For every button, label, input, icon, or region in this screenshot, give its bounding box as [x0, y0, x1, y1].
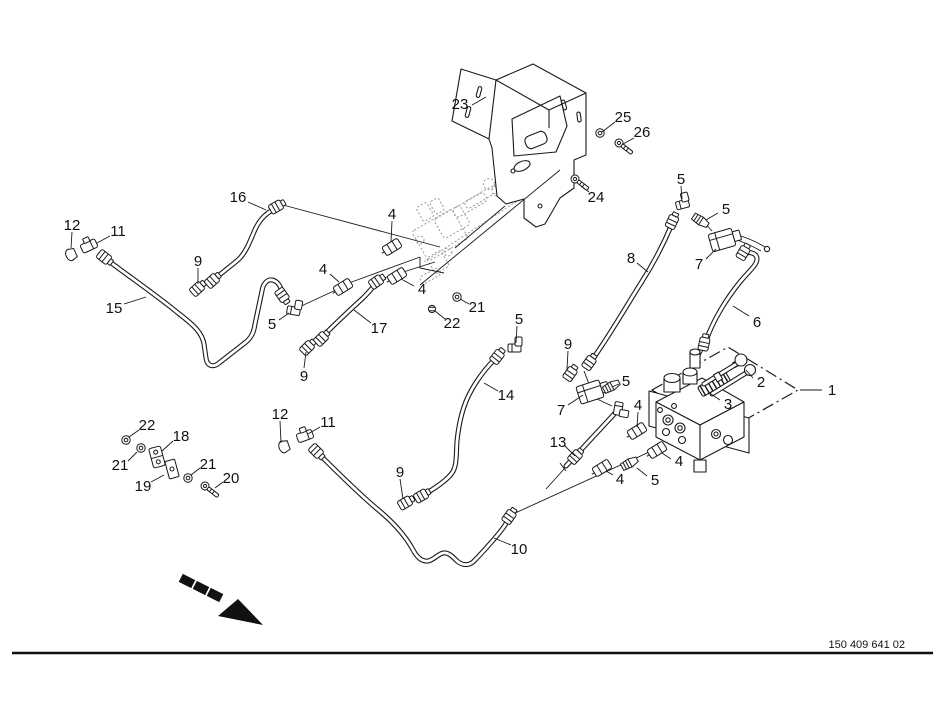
hose-14	[423, 359, 495, 496]
callout-label-17: 17	[371, 320, 388, 337]
union-4-valve-right	[644, 441, 667, 461]
callout-leader-4	[662, 453, 671, 459]
union-4-valve-left	[589, 459, 612, 479]
callout-label-9: 9	[396, 464, 404, 481]
washer-22-bl	[122, 436, 130, 444]
elbow-5-top-right	[673, 192, 690, 210]
callout-leader-7	[706, 249, 716, 259]
hose8-top-nut	[665, 211, 681, 230]
callout-leader-21	[128, 452, 137, 461]
callout-leader-12	[280, 421, 281, 443]
callout-label-7: 7	[557, 402, 565, 419]
callout-label-9: 9	[300, 368, 308, 385]
callout-leader-4	[606, 471, 613, 475]
callout-leader-15	[124, 297, 146, 304]
callout-label-4: 4	[319, 261, 327, 278]
callout-leader-26	[623, 138, 634, 144]
hose-17	[321, 282, 377, 338]
callout-label-21: 21	[469, 299, 486, 316]
callout-label-5: 5	[722, 201, 730, 218]
union-4-a	[330, 278, 353, 298]
clamp-18	[149, 446, 166, 468]
callout-label-5: 5	[515, 311, 523, 328]
union-4-c	[384, 267, 407, 287]
callout-label-4: 4	[418, 281, 426, 298]
fittings	[64, 129, 752, 525]
callout-label-14: 14	[498, 387, 515, 404]
callout-leader-5	[637, 468, 647, 476]
callout-leader-9	[567, 351, 568, 369]
fitting-11-bottom	[294, 425, 314, 443]
callout-leader-18	[162, 441, 173, 451]
callout-label-1: 1	[828, 382, 836, 399]
hose-10	[316, 451, 508, 565]
diagram-svg: 2325262455716121194442122155179865975131…	[0, 0, 950, 725]
callout-label-11: 11	[110, 223, 126, 240]
callout-label-22: 22	[139, 417, 156, 434]
callout-leader-10	[494, 538, 511, 545]
bolt-26	[613, 137, 634, 156]
callout-label-4: 4	[675, 453, 683, 470]
callout-leader-21	[191, 468, 200, 475]
callout-label-15: 15	[106, 300, 123, 317]
callout-label-3: 3	[724, 396, 732, 413]
callout-label-4: 4	[634, 397, 642, 414]
callout-label-5: 5	[622, 373, 630, 390]
callout-label-26: 26	[634, 124, 651, 141]
callout-label-11: 11	[320, 414, 336, 431]
assembly-axis-lines	[283, 170, 712, 514]
plug-5-right	[691, 212, 710, 229]
callout-label-5: 5	[268, 316, 276, 333]
hose-16	[214, 208, 276, 280]
bolt-20	[199, 480, 220, 499]
nut-9-mid	[562, 363, 580, 382]
drawing-number: 150 409 641 02	[829, 639, 905, 651]
callout-leader-22	[129, 430, 139, 437]
screw-5-mid	[602, 378, 621, 394]
callouts: 2325262455716121194442122155179865975131…	[64, 96, 837, 558]
callout-label-7: 7	[695, 256, 703, 273]
callout-leader-25	[602, 122, 615, 132]
washer-21-bl-right	[184, 474, 192, 482]
elbow-5-mid	[508, 337, 522, 352]
fitting-11-left	[78, 234, 98, 253]
callout-label-5: 5	[651, 472, 659, 489]
callout-label-24: 24	[588, 189, 605, 206]
plate-19	[165, 459, 179, 479]
callout-label-10: 10	[511, 541, 528, 558]
mounting-bracket	[452, 64, 586, 227]
fitting-cap-12-bottom	[277, 439, 291, 454]
callout-leader-4	[330, 274, 339, 282]
callout-label-4: 4	[388, 206, 396, 223]
callout-leader-5	[279, 313, 289, 320]
callout-leader-6	[733, 306, 749, 316]
washer-21-bl-left	[137, 444, 145, 452]
callout-label-22: 22	[444, 315, 461, 332]
hose-15	[106, 259, 283, 366]
callout-leader-4	[391, 221, 392, 242]
callout-label-9: 9	[194, 253, 202, 270]
callout-label-19: 19	[135, 478, 152, 495]
callout-label-5: 5	[677, 171, 685, 188]
callout-label-12: 12	[64, 217, 81, 234]
callout-label-8: 8	[627, 250, 635, 267]
plug-5-valve	[620, 455, 639, 471]
callout-leader-11	[97, 236, 110, 243]
callout-label-18: 18	[173, 428, 190, 445]
direction-arrow-icon	[179, 574, 263, 625]
callout-leader-16	[248, 202, 266, 210]
callout-label-23: 23	[452, 96, 469, 113]
nut-22-mid	[428, 305, 435, 312]
callout-leader-8	[637, 263, 648, 272]
callout-label-20: 20	[223, 470, 240, 487]
callout-label-16: 16	[230, 189, 247, 206]
callout-label-13: 13	[550, 434, 567, 451]
callout-label-25: 25	[615, 109, 632, 126]
callout-leader-21	[460, 299, 469, 304]
callout-label-4: 4	[616, 471, 624, 488]
callout-leader-4	[401, 279, 414, 286]
callout-leader-9	[400, 479, 403, 499]
fitting-cap-12-left	[64, 247, 78, 262]
hose-8	[592, 224, 672, 360]
washer-25	[596, 129, 604, 137]
callout-leader-12	[71, 232, 72, 248]
callout-leader-5	[706, 213, 718, 220]
hose15-right-nut	[274, 287, 292, 306]
callout-label-21: 21	[112, 457, 129, 474]
footer: 150 409 641 02	[12, 639, 933, 653]
callout-label-21: 21	[200, 456, 217, 473]
solenoid-valve-7-right	[708, 226, 743, 252]
callout-label-9: 9	[564, 336, 572, 353]
callout-label-2: 2	[757, 374, 765, 391]
callout-leader-14	[484, 383, 498, 391]
washer-21-mid	[453, 293, 461, 301]
callout-label-12: 12	[272, 406, 289, 423]
hose-6	[706, 253, 757, 341]
callout-leader-19	[151, 475, 164, 482]
hose6-bottom-nut	[698, 333, 711, 351]
callout-leader-17	[354, 310, 371, 323]
parts-diagram-page: 2325262455716121194442122155179865975131…	[0, 0, 950, 725]
union-4-valve-top	[624, 422, 647, 442]
callout-label-6: 6	[753, 314, 761, 331]
